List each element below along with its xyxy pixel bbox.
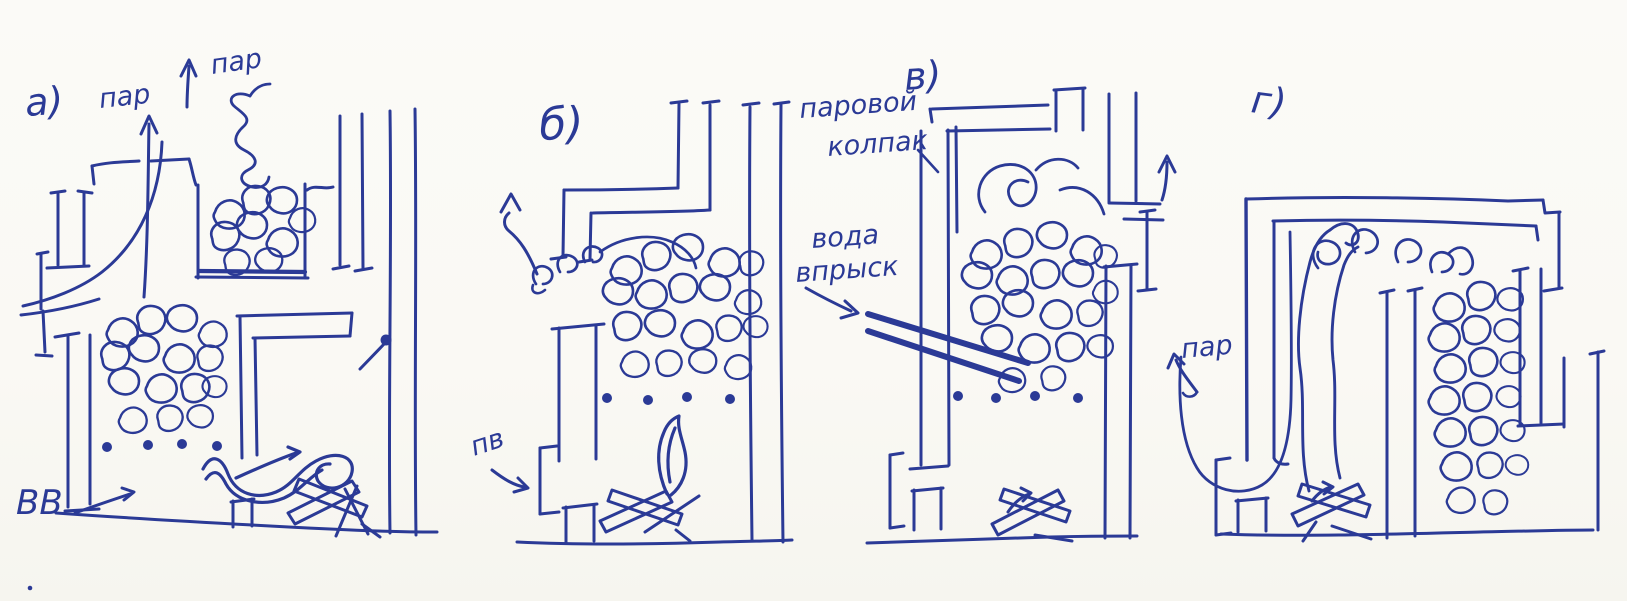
water-injection-caption: впрыск xyxy=(794,251,900,289)
firewood xyxy=(992,488,1072,541)
air-inlet-arrow xyxy=(492,470,528,492)
steam-exit-arrow xyxy=(501,194,545,293)
grate-holes xyxy=(102,439,222,452)
stove-walls xyxy=(517,101,792,544)
air-inlet-arrow xyxy=(75,488,134,513)
steam-label: пар xyxy=(209,43,264,81)
ink-speck xyxy=(28,586,33,591)
stones-pile xyxy=(603,234,768,379)
steam-exit-arrow xyxy=(1159,156,1175,200)
stove-diagram-b: б) пв xyxy=(467,98,792,544)
scanned-sketch-page: а) пар пар ВВ xyxy=(0,0,1627,601)
air-inlet-label: ВВ xyxy=(16,483,63,523)
panel-label: а) xyxy=(24,78,65,125)
stove-walls xyxy=(1216,198,1604,538)
grate-holes xyxy=(602,392,735,405)
steam-hood-caption: колпак xyxy=(826,125,929,163)
steam-curls xyxy=(1313,229,1473,274)
firewood xyxy=(1292,482,1371,541)
panel-label: г) xyxy=(1249,77,1289,125)
damper-handle xyxy=(360,335,392,370)
stove-sketches-drawing: а) пар пар ВВ xyxy=(0,0,1627,601)
flame xyxy=(203,447,352,502)
stones-pile xyxy=(962,222,1118,392)
air-inlet-label: пв xyxy=(467,423,509,463)
flame xyxy=(659,416,686,495)
steam-hood-caption: паровой xyxy=(798,86,918,125)
steam-label: пар xyxy=(97,79,151,115)
steam-coil xyxy=(979,159,1104,214)
steam-label: пар xyxy=(1180,330,1234,365)
steam-curls xyxy=(533,237,696,284)
stove-diagram-v: в) паровой колпак вода впрыск xyxy=(794,52,1175,543)
firewood xyxy=(600,490,699,541)
water-injection-arrow xyxy=(806,288,858,318)
stones-pile xyxy=(101,305,226,433)
steam-spiral xyxy=(231,84,270,187)
stove-diagram-g: г) пар xyxy=(1168,77,1604,541)
steam-arrow-right xyxy=(181,60,196,107)
grate-holes xyxy=(953,391,1083,403)
stones-pile xyxy=(1429,282,1529,514)
stove-diagram-a: а) пар пар ВВ xyxy=(16,43,437,537)
water-injection-caption: вода xyxy=(810,219,880,255)
stones-basket xyxy=(211,186,315,275)
stove-walls xyxy=(21,109,437,535)
panel-label: б) xyxy=(538,98,585,151)
